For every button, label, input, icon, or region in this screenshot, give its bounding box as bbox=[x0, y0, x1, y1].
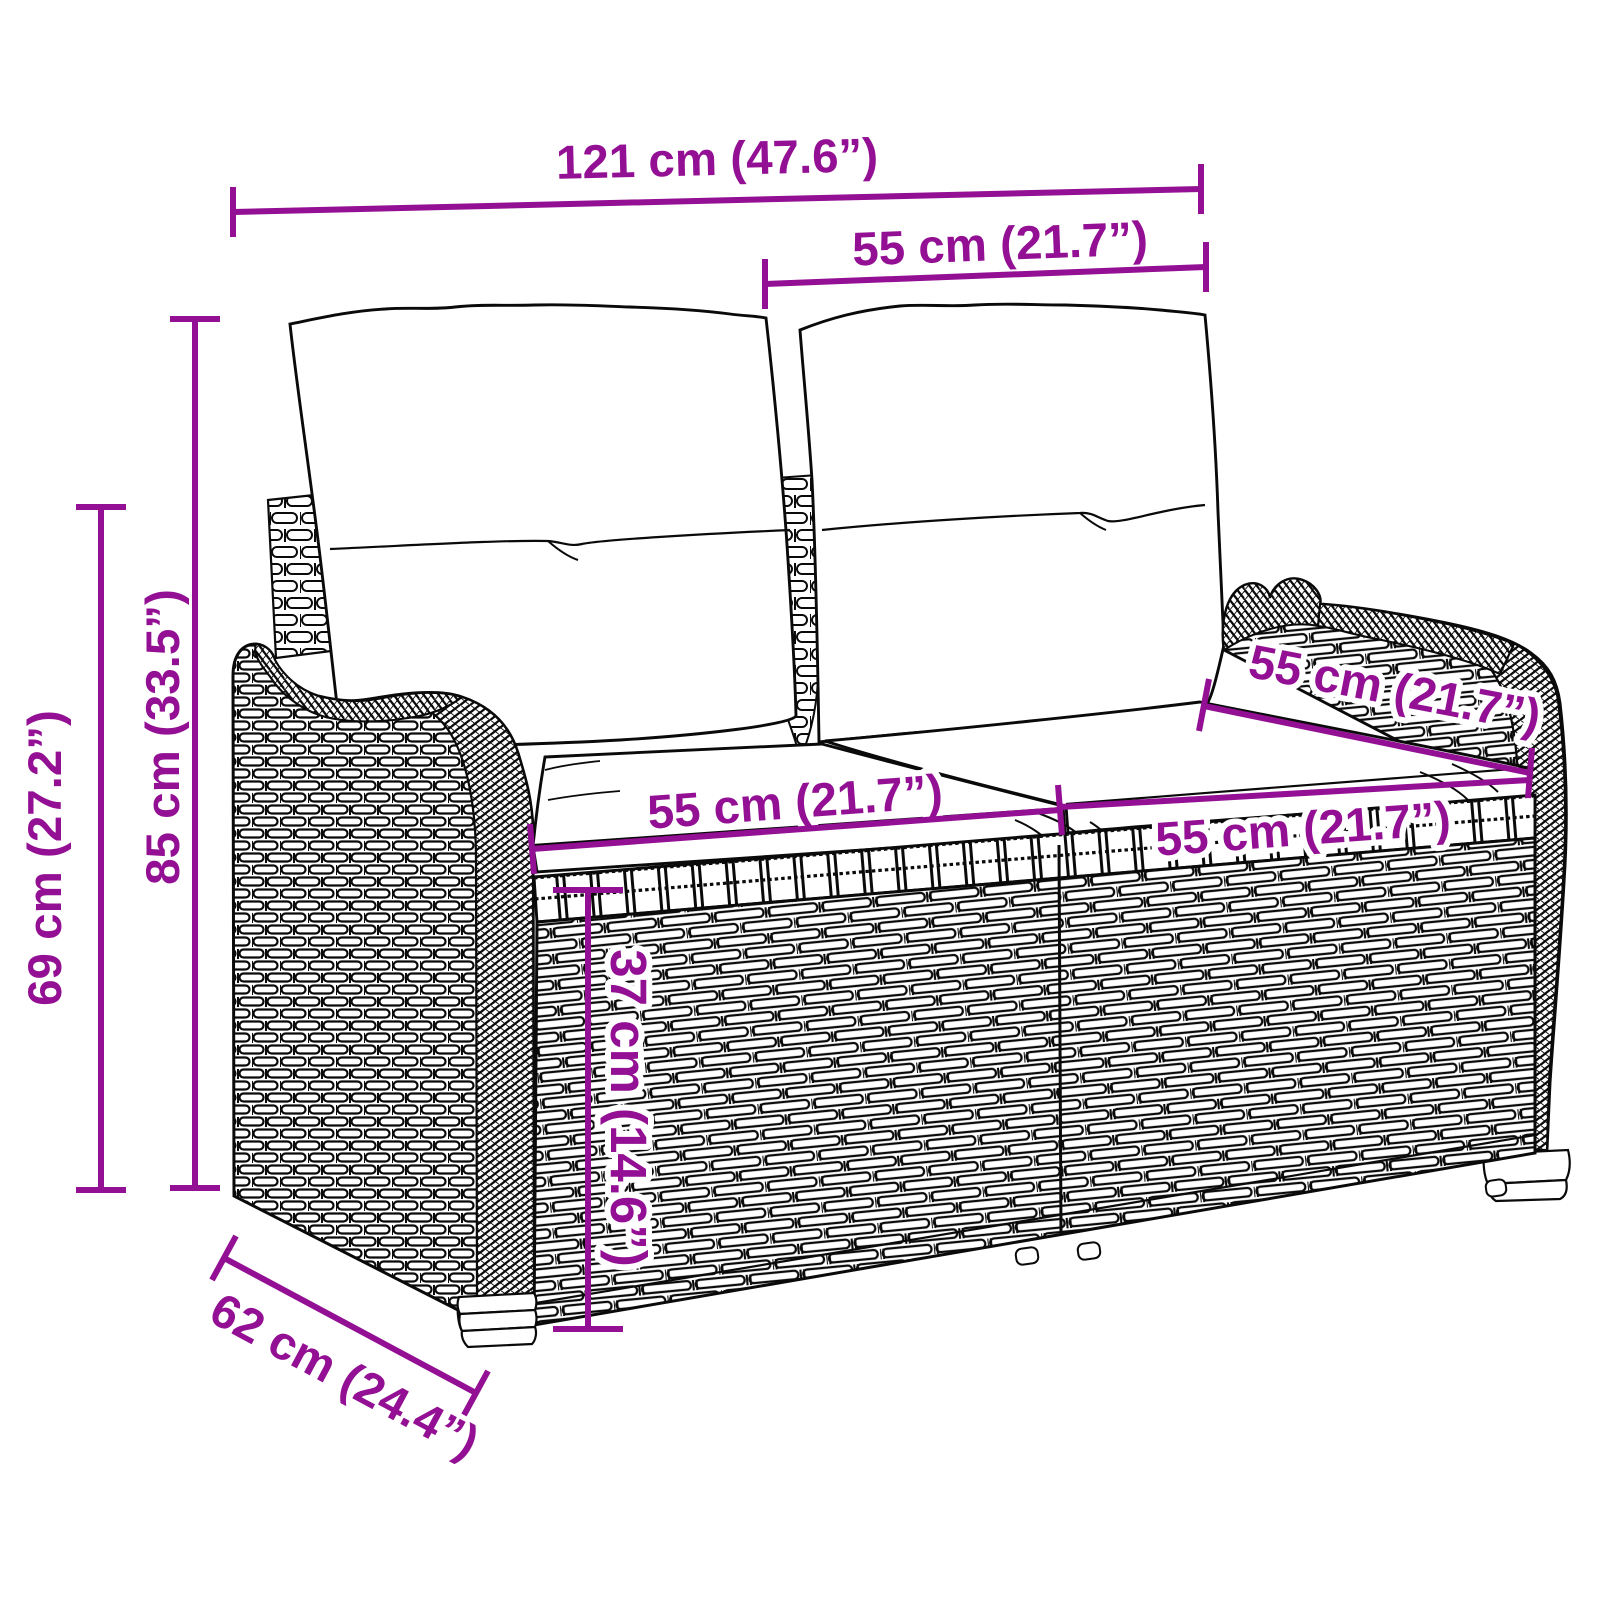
svg-text:85 cm (33.5”): 85 cm (33.5”) bbox=[137, 589, 190, 885]
svg-text:121 cm (47.6”): 121 cm (47.6”) bbox=[555, 129, 878, 190]
svg-text:55 cm (21.7”): 55 cm (21.7”) bbox=[851, 212, 1149, 276]
svg-text:69 cm (27.2”): 69 cm (27.2”) bbox=[19, 710, 72, 1006]
svg-text:37 cm (14.6”): 37 cm (14.6”) bbox=[600, 949, 657, 1267]
